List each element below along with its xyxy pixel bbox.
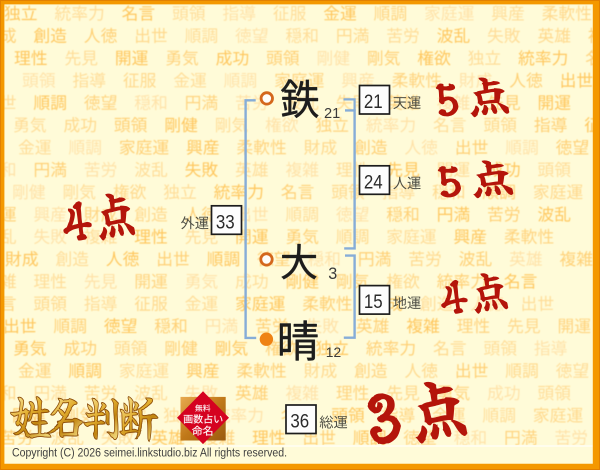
- svg-text:21: 21: [324, 106, 340, 122]
- svg-text:Copyright (C) 2026 seimei.link: Copyright (C) 2026 seimei.linkstudio.biz…: [12, 446, 287, 460]
- svg-text:24: 24: [364, 172, 383, 193]
- svg-text:12: 12: [326, 345, 341, 360]
- svg-text:36: 36: [290, 412, 309, 433]
- svg-text:3: 3: [328, 265, 337, 283]
- svg-text:15: 15: [364, 292, 383, 313]
- svg-text:21: 21: [364, 92, 383, 113]
- svg-text:33: 33: [216, 212, 235, 233]
